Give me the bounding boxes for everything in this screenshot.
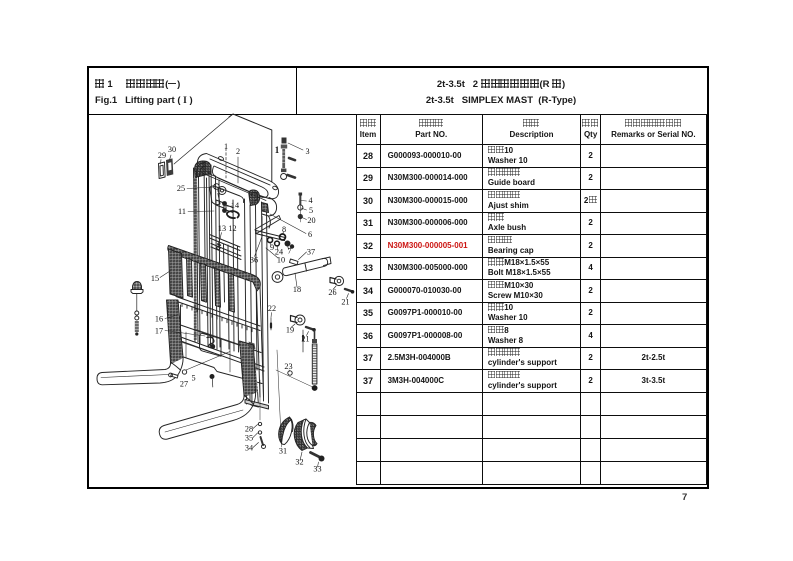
svg-text:35: 35 xyxy=(245,434,253,443)
svg-text:33: 33 xyxy=(313,465,321,474)
svg-text:11: 11 xyxy=(178,207,186,216)
svg-text:17: 17 xyxy=(155,327,163,336)
svg-text:31: 31 xyxy=(279,447,287,456)
svg-text:15: 15 xyxy=(151,274,159,283)
svg-text:29: 29 xyxy=(158,151,166,160)
svg-text:5: 5 xyxy=(309,206,313,215)
svg-text:8: 8 xyxy=(282,225,286,234)
svg-text:14: 14 xyxy=(231,201,239,210)
svg-text:21: 21 xyxy=(301,335,309,344)
svg-text:36: 36 xyxy=(250,256,258,265)
svg-text:16: 16 xyxy=(155,315,163,324)
svg-text:34: 34 xyxy=(245,444,253,453)
svg-text:18: 18 xyxy=(293,285,301,294)
svg-text:25: 25 xyxy=(177,184,185,193)
svg-text:32: 32 xyxy=(295,458,303,467)
svg-text:4: 4 xyxy=(308,196,312,205)
svg-text:20: 20 xyxy=(307,216,315,225)
svg-text:23: 23 xyxy=(284,362,292,371)
svg-text:12: 12 xyxy=(228,224,236,233)
svg-text:10: 10 xyxy=(277,256,285,265)
svg-text:22: 22 xyxy=(268,304,276,313)
svg-text:5: 5 xyxy=(191,374,195,383)
svg-text:30: 30 xyxy=(168,145,176,154)
svg-text:21: 21 xyxy=(341,298,349,307)
svg-text:1: 1 xyxy=(275,145,280,155)
svg-text:27: 27 xyxy=(180,380,188,389)
svg-text:1: 1 xyxy=(224,142,228,151)
svg-text:3: 3 xyxy=(305,147,309,156)
svg-text:9: 9 xyxy=(270,243,274,252)
svg-text:7: 7 xyxy=(287,247,291,256)
svg-text:26: 26 xyxy=(328,288,336,297)
svg-text:19: 19 xyxy=(286,326,294,335)
svg-text:2: 2 xyxy=(236,147,240,156)
svg-text:28: 28 xyxy=(245,425,253,434)
svg-text:13: 13 xyxy=(218,224,226,233)
svg-text:37: 37 xyxy=(307,248,315,257)
svg-text:6: 6 xyxy=(308,230,312,239)
